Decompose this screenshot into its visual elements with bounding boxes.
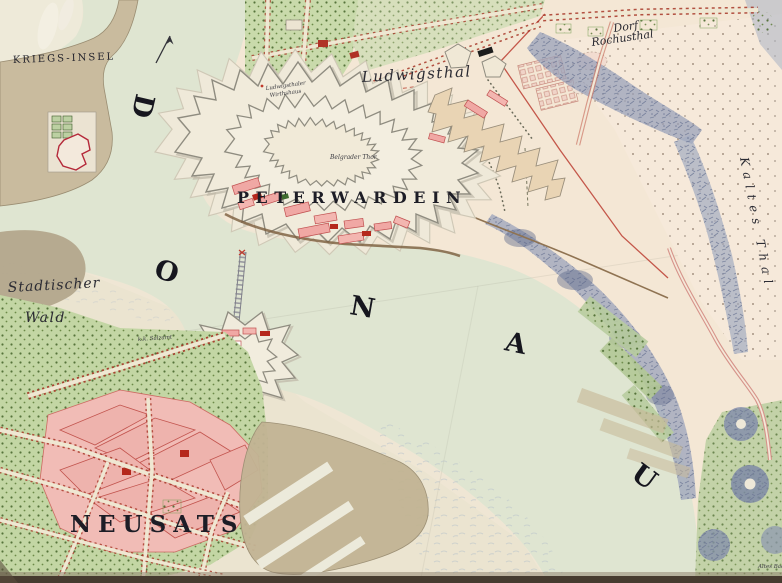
label-neusats: NEUSATS — [70, 511, 245, 538]
crag-hill — [724, 407, 758, 441]
photo-edge-bottom — [0, 576, 782, 583]
town-neusats — [0, 295, 268, 583]
label-belgrader-thor: Belgrader Thor — [329, 154, 378, 161]
crag-hill — [698, 529, 730, 561]
map-svg: D O N A U KRIEGS-INSEL PETERWARDEIN NEUS… — [0, 0, 782, 583]
trees-ne-corner — [751, 11, 773, 33]
poi-dot — [261, 85, 264, 88]
label-peterwardein: PETERWARDEIN — [237, 188, 467, 207]
town-building — [180, 450, 189, 457]
label-altes-bad: Altes Bad — [757, 564, 782, 570]
map-canvas: D O N A U KRIEGS-INSEL PETERWARDEIN NEUS… — [0, 0, 782, 583]
crag-hill — [731, 465, 769, 503]
svg-text:Wald: Wald — [25, 310, 66, 326]
photo-edge-shadow — [0, 572, 782, 576]
